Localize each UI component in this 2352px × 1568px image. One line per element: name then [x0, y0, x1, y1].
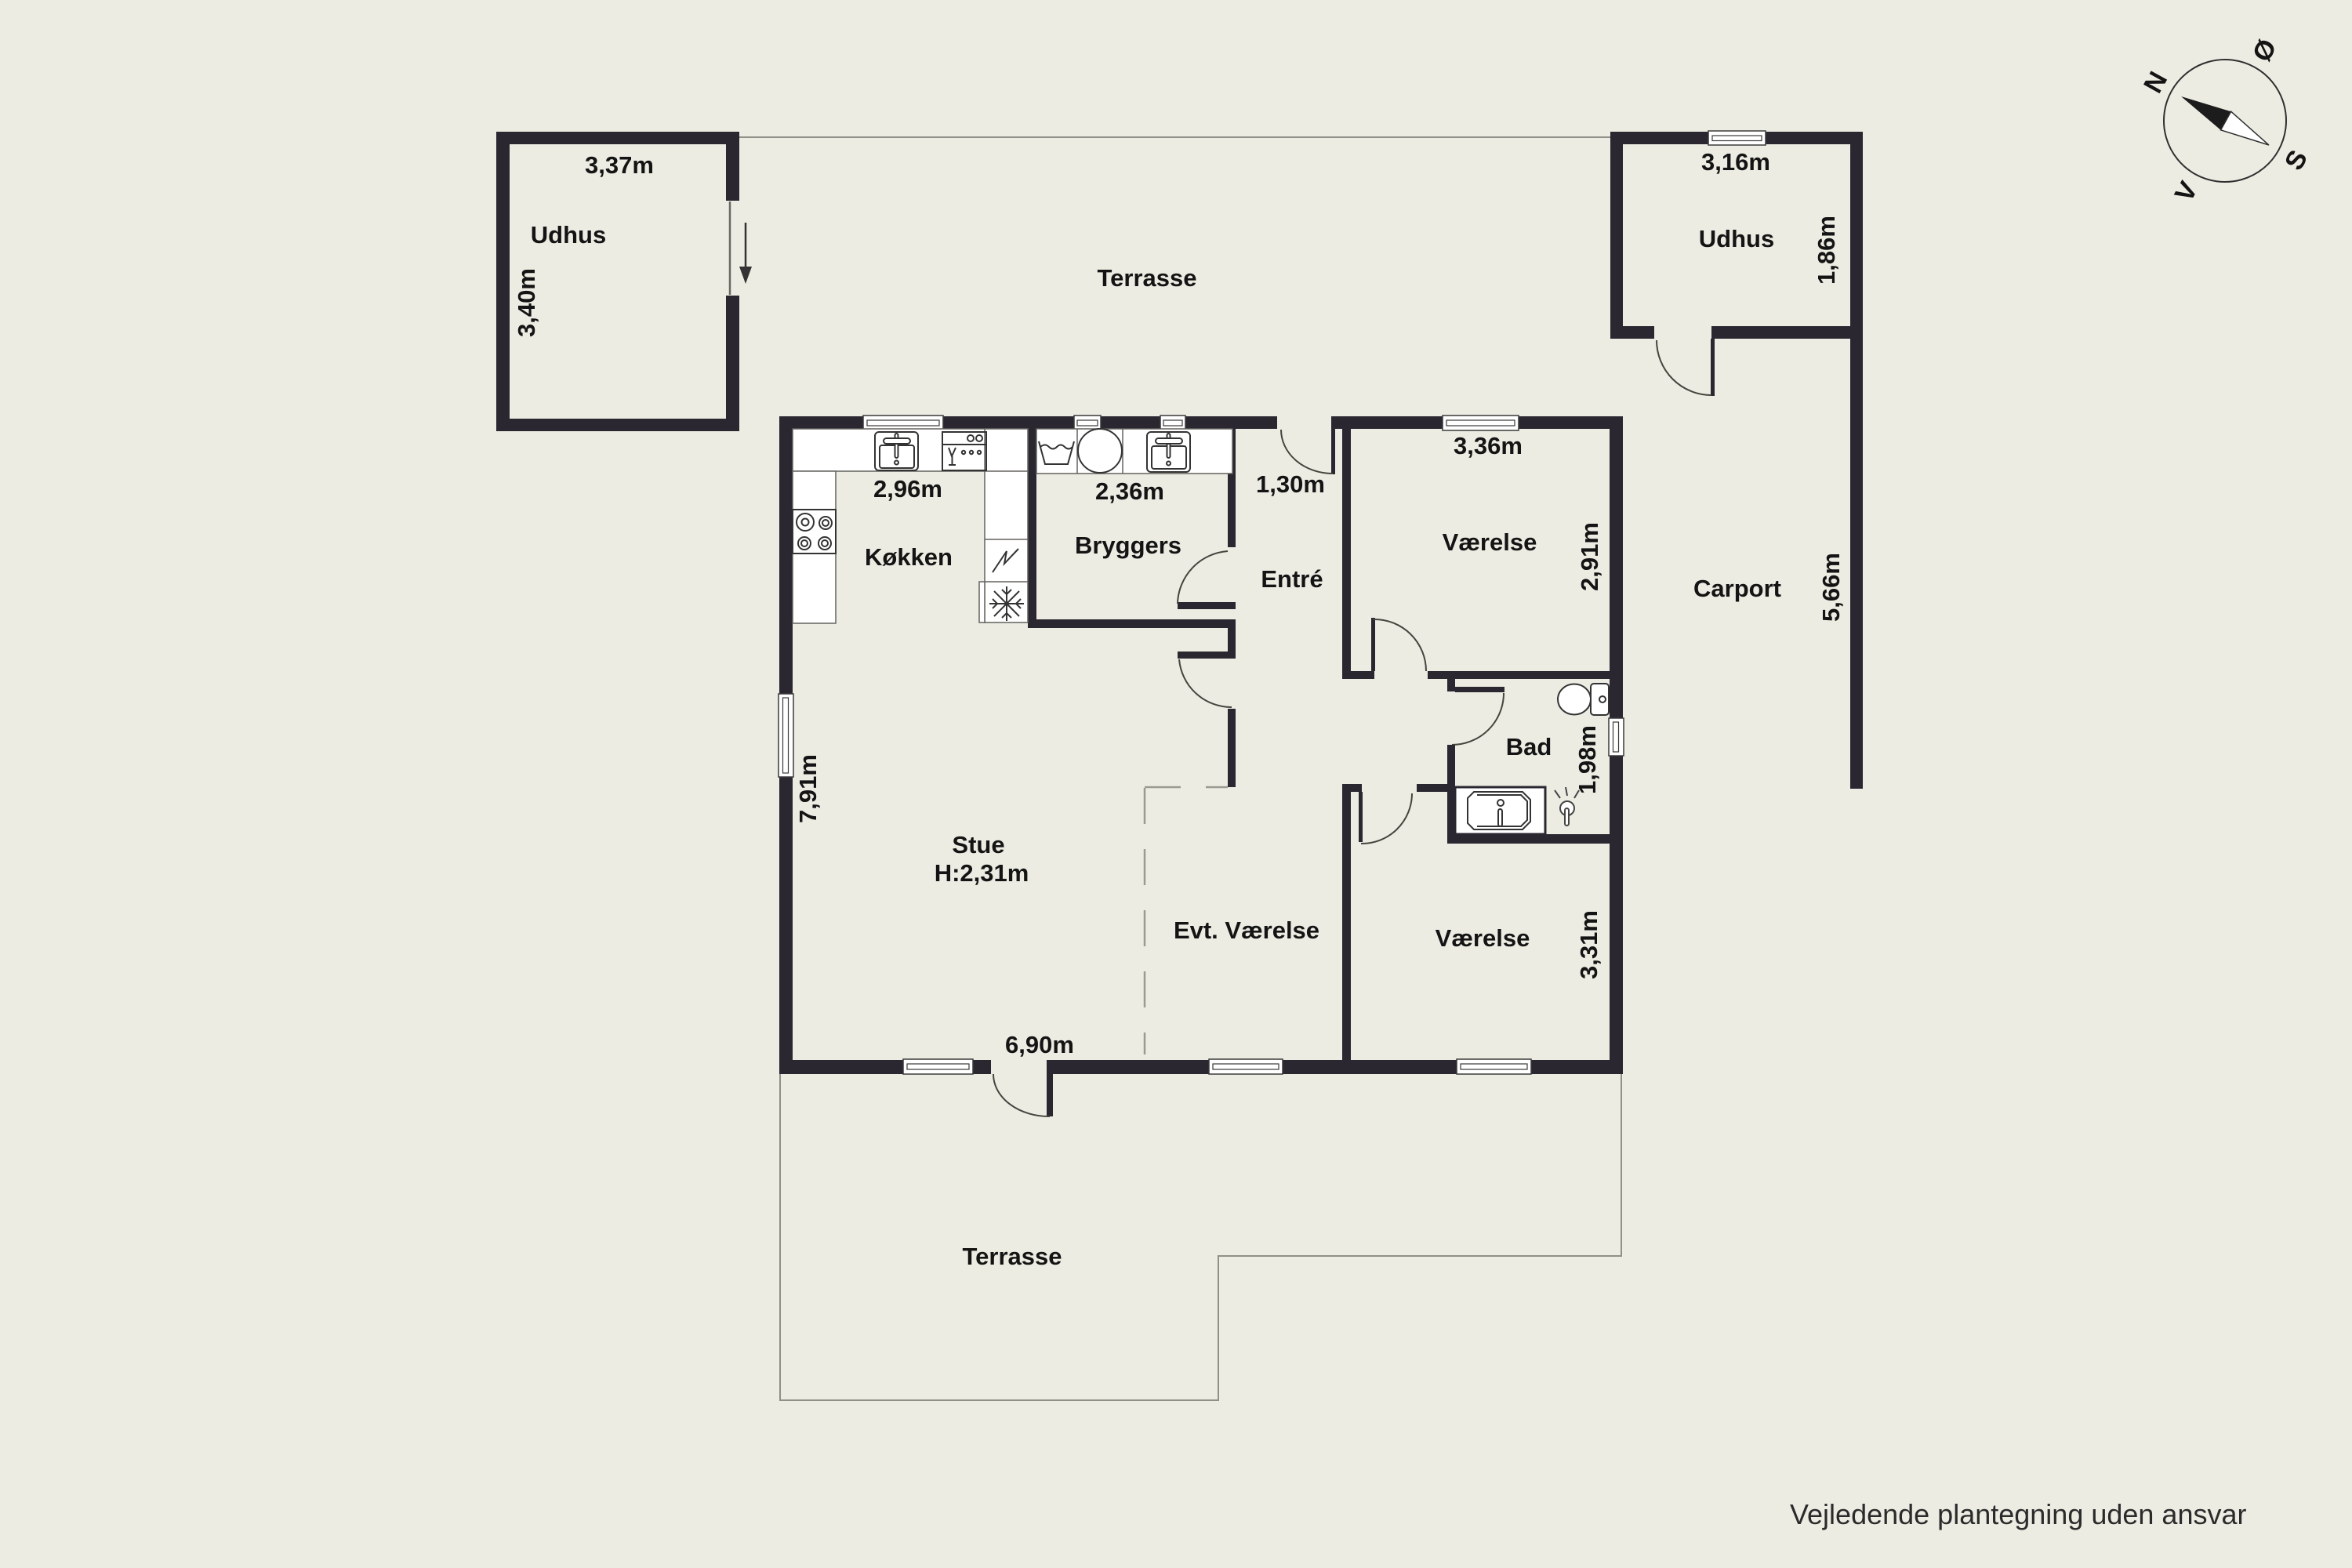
svg-text:3,40m: 3,40m — [513, 268, 540, 337]
svg-text:Vejledende plantegning uden an: Vejledende plantegning uden ansvar — [1790, 1498, 2247, 1530]
svg-text:3,31m: 3,31m — [1575, 910, 1602, 979]
svg-text:Bad: Bad — [1506, 733, 1552, 760]
svg-text:2,36m: 2,36m — [1095, 477, 1164, 505]
svg-text:Stue: Stue — [952, 831, 1004, 858]
svg-text:1,98m: 1,98m — [1573, 725, 1601, 794]
svg-text:Køkken: Køkken — [865, 543, 953, 571]
svg-text:1,86m: 1,86m — [1813, 216, 1840, 285]
svg-text:2,91m: 2,91m — [1576, 522, 1603, 591]
svg-text:Carport: Carport — [1693, 575, 1781, 602]
svg-text:Værelse: Værelse — [1436, 924, 1530, 952]
svg-text:Bryggers: Bryggers — [1075, 532, 1181, 559]
svg-text:Terrasse: Terrasse — [1098, 264, 1197, 292]
svg-text:6,90m: 6,90m — [1005, 1031, 1074, 1058]
svg-text:Evt. Værelse: Evt. Værelse — [1174, 916, 1319, 944]
svg-text:Udhus: Udhus — [531, 221, 606, 249]
svg-text:2,96m: 2,96m — [873, 475, 942, 503]
svg-text:3,37m: 3,37m — [585, 151, 654, 179]
svg-text:Entré: Entré — [1261, 565, 1323, 593]
svg-text:7,91m: 7,91m — [794, 754, 822, 823]
svg-text:Værelse: Værelse — [1443, 528, 1537, 556]
svg-text:H:2,31m: H:2,31m — [935, 859, 1029, 887]
svg-text:1,30m: 1,30m — [1256, 470, 1325, 498]
svg-text:5,66m: 5,66m — [1817, 553, 1845, 622]
svg-text:Terrasse: Terrasse — [963, 1243, 1062, 1270]
svg-text:Udhus: Udhus — [1699, 225, 1774, 252]
svg-text:3,36m: 3,36m — [1454, 432, 1523, 459]
svg-text:3,16m: 3,16m — [1701, 148, 1770, 176]
